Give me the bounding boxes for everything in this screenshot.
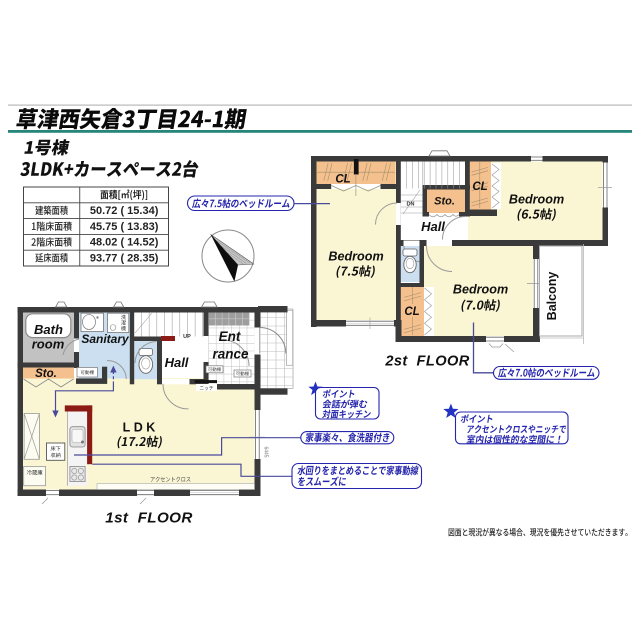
svg-text:Bedroom: Bedroom xyxy=(328,250,383,264)
svg-text:Bath: Bath xyxy=(34,322,63,337)
svg-text:L D K: L D K xyxy=(123,421,156,435)
svg-text:50.72 ( 15.34): 50.72 ( 15.34) xyxy=(90,205,159,217)
svg-text:45.75 ( 13.83): 45.75 ( 13.83) xyxy=(90,221,159,233)
svg-text:Bedroom: Bedroom xyxy=(453,283,508,297)
svg-text:Sanitary: Sanitary xyxy=(81,332,130,346)
svg-text:48.02 ( 14.52): 48.02 ( 14.52) xyxy=(90,237,159,249)
svg-text:6445: 6445 xyxy=(263,446,269,457)
svg-text:Sto.: Sto. xyxy=(35,368,57,380)
svg-text:Ent: Ent xyxy=(219,329,241,344)
svg-text:2st FLOOR: 2st FLOOR xyxy=(384,354,469,370)
svg-text:Bedroom: Bedroom xyxy=(509,193,564,207)
svg-text:room: room xyxy=(32,337,65,352)
svg-text:DN: DN xyxy=(407,202,415,208)
svg-text:93.77 ( 28.35): 93.77 ( 28.35) xyxy=(90,253,159,265)
svg-text:Sto.: Sto. xyxy=(434,196,455,208)
svg-text:Hall: Hall xyxy=(421,219,445,234)
svg-text:Balcony: Balcony xyxy=(545,272,559,321)
svg-text:rance: rance xyxy=(212,347,249,362)
svg-text:1st FLOOR: 1st FLOOR xyxy=(105,510,193,527)
svg-text:Hall: Hall xyxy=(165,355,189,370)
svg-text:UP: UP xyxy=(183,334,191,340)
svg-text:CL: CL xyxy=(404,306,419,318)
svg-text:CL: CL xyxy=(472,181,487,193)
svg-text:CL: CL xyxy=(335,174,350,186)
